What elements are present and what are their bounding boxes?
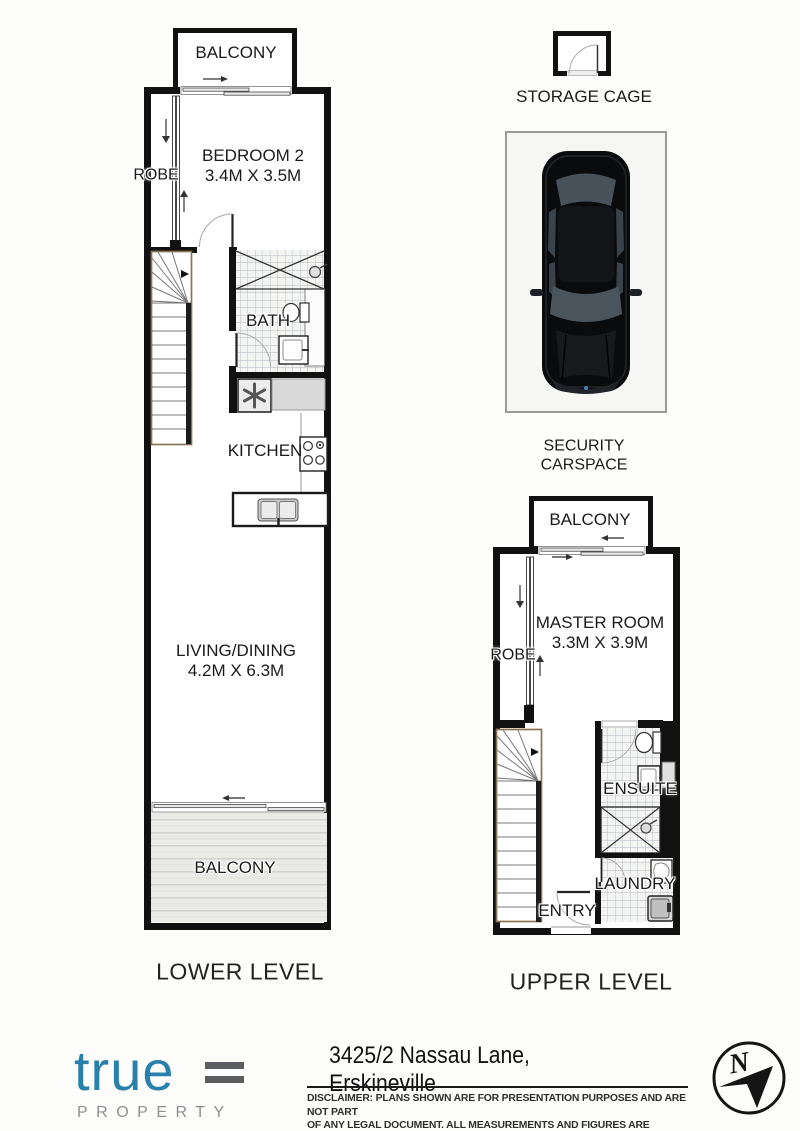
footer-divider [307, 1086, 688, 1088]
lower-stairs [152, 252, 192, 445]
cooktop-icon [300, 437, 327, 471]
living-dims: 4.2M X 6.3M [176, 661, 296, 681]
floorplan-page: N BALCONY BEDROOM 2 3.4M X 3.5M ROBE BAT… [0, 0, 800, 1131]
master-label: MASTER ROOM 3.3M X 3.9M [536, 613, 664, 653]
car-rear-window [556, 174, 616, 207]
upper-level-caption: UPPER LEVEL [510, 968, 673, 995]
lower-top-balcony-label: BALCONY [195, 43, 276, 63]
logo-true: true [74, 1043, 175, 1099]
bath-sink-icon [279, 336, 309, 364]
bath-label: BATH [246, 311, 290, 331]
floor-plan-graphics: N [0, 0, 800, 1131]
bedroom2-name: BEDROOM 2 [202, 146, 304, 166]
kitchen-label: KITCHEN [228, 441, 303, 461]
lower-bottom-balcony-label: BALCONY [194, 858, 275, 878]
compass-n-label: N [726, 1046, 754, 1081]
disclaimer-line2: OF ANY LEGAL DOCUMENT. ALL MEASUREMENTS … [307, 1119, 707, 1131]
ensuite-label: ENSUITE [603, 779, 677, 799]
car-mirror-right [629, 289, 642, 296]
master-dims: 3.3M X 3.9M [536, 633, 664, 653]
laundry-label: LAUNDRY [595, 874, 676, 894]
carspace-label-line1: SECURITY [544, 438, 625, 457]
logo-property: PROPERTY [77, 1104, 233, 1122]
upper-balcony-label: BALCONY [549, 510, 630, 530]
security-carspace [506, 132, 666, 412]
storage-cage-label: STORAGE CAGE [516, 87, 652, 107]
car-roof [558, 206, 614, 282]
disclaimer-text: DISCLAIMER: PLANS SHOWN ARE FOR PRESENTA… [307, 1092, 707, 1131]
lower-robe-label: ROBE [133, 167, 178, 186]
bedroom2-label: BEDROOM 2 3.4M X 3.5M [202, 146, 304, 186]
kitchen-bench-sink [233, 493, 328, 526]
living-label: LIVING/DINING 4.2M X 6.3M [176, 641, 296, 681]
entry-label: ENTRY [538, 901, 595, 921]
upper-robe-label: ROBE [490, 647, 535, 666]
storage-cage [556, 34, 609, 79]
disclaimer-line1: DISCLAIMER: PLANS SHOWN ARE FOR PRESENTA… [307, 1092, 707, 1119]
upper-stairs [497, 730, 542, 923]
property-address: 3425/2 Nassau Lane, Erskineville [329, 1042, 617, 1098]
master-name: MASTER ROOM [536, 613, 664, 633]
lower-level-caption: LOWER LEVEL [156, 958, 324, 985]
car-top-view [530, 151, 642, 394]
ensuite-toilet-icon [636, 732, 662, 753]
north-compass: N [714, 1043, 784, 1113]
counter [272, 379, 325, 410]
carspace-label-line2: CARSPACE [541, 457, 628, 476]
living-name: LIVING/DINING [176, 641, 296, 661]
bedroom2-dims: 3.4M X 3.5M [202, 166, 304, 186]
washing-machine-icon [648, 896, 673, 921]
upper-level-plan [497, 499, 678, 935]
car-mirror-left [530, 289, 543, 296]
